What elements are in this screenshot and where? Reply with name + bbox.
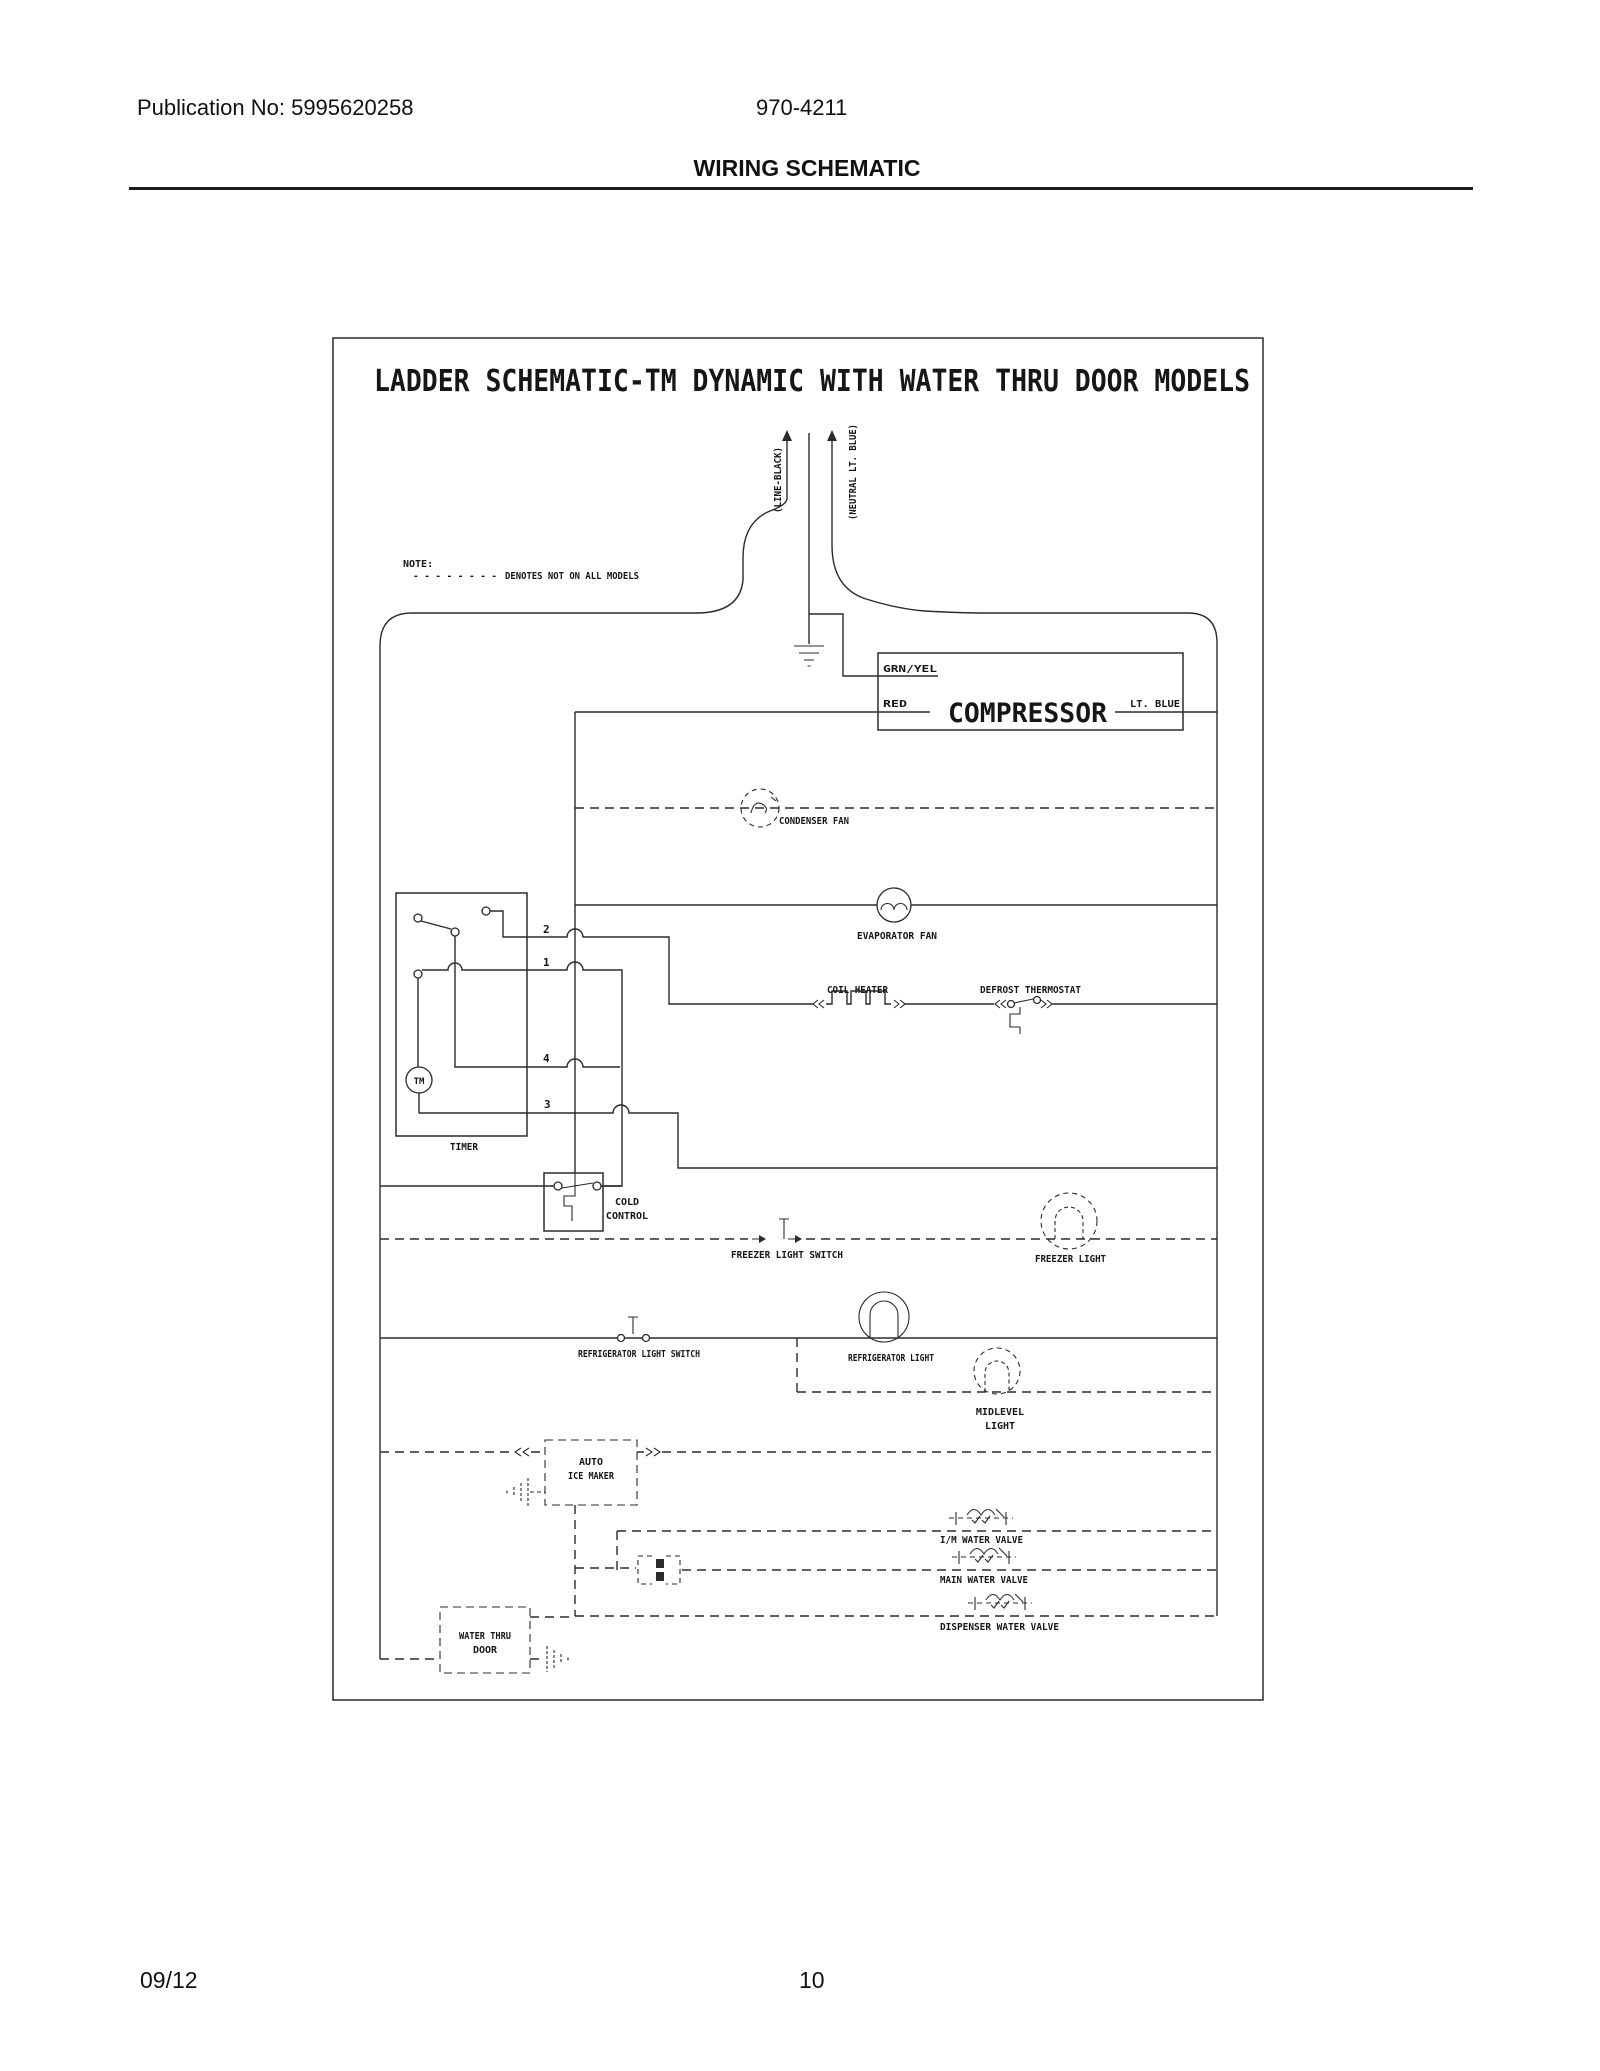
wire-label-grn-yel: GRN/YEL xyxy=(883,664,937,675)
timer-terminal3-wire xyxy=(419,1105,1217,1168)
connector-pin-gap xyxy=(656,1568,664,1572)
neutral-arrow-icon xyxy=(827,430,837,441)
cold-control-box xyxy=(544,1173,603,1231)
coil-heater-label: COIL HEATER xyxy=(827,985,889,996)
timer-terminal-2: 2 xyxy=(543,923,550,936)
defrost-contact-icon xyxy=(1034,997,1041,1004)
midlevel-light-label-1: MIDLEVEL xyxy=(976,1407,1024,1418)
timer-terminal-4: 4 xyxy=(543,1052,550,1065)
connector-chevron-icon xyxy=(813,1000,824,1008)
main-water-valve-icon xyxy=(952,1548,1016,1564)
midlevel-light-wire xyxy=(797,1338,1217,1392)
valve-feed-wires xyxy=(575,1505,636,1616)
im-water-valve-icon xyxy=(949,1509,1013,1525)
switch-contact-icon xyxy=(643,1335,650,1342)
neutral-label: (NEUTRAL LT. BLUE) xyxy=(848,424,859,520)
condenser-fan: CONDENSER FAN xyxy=(575,789,1217,827)
timer-terminal2-wire xyxy=(490,911,814,1004)
ice-maker-label-1: AUTO xyxy=(579,1457,603,1468)
freezer-door-switch-icon xyxy=(752,1219,796,1239)
water-valve-circuits: I/M WATER VALVE MAIN WATER VALVE DISPENS… xyxy=(575,1505,1217,1633)
defrost-thermostat-label: DEFROST THERMOSTAT xyxy=(980,985,1081,996)
timer-terminal4-wire xyxy=(455,936,620,1067)
cold-control-label-2: CONTROL xyxy=(606,1211,648,1222)
publication-number: Publication No: 5995620258 xyxy=(137,95,413,120)
cold-control-contact-icon xyxy=(593,1182,601,1190)
wire-label-lt-blue: LT. BLUE xyxy=(1130,699,1180,710)
condenser-fan-label: CONDENSER FAN xyxy=(779,816,849,827)
im-water-valve-label: I/M WATER VALVE xyxy=(940,1535,1023,1546)
freezer-light-label: FREEZER LIGHT xyxy=(1035,1254,1106,1265)
evaporator-fan-motor-icon xyxy=(877,888,911,922)
note-label: NOTE: xyxy=(403,559,433,570)
timer-terminal-3: 3 xyxy=(544,1098,551,1111)
auto-ice-maker: AUTO ICE MAKER xyxy=(380,1440,1217,1506)
freezer-light-circuit: FREEZER LIGHT SWITCH FREEZER LIGHT xyxy=(380,1193,1217,1265)
schematic-frame xyxy=(333,338,1263,1700)
refrigerator-light-icon xyxy=(859,1292,909,1342)
cold-control-bellows-icon xyxy=(564,1173,575,1221)
water-thru-door-label-1: WATER THRU xyxy=(459,1631,511,1642)
ground-icon xyxy=(794,646,824,666)
line-arrow-icon xyxy=(782,430,792,441)
timer-contact-icon xyxy=(414,914,422,922)
document-number: 970-4211 xyxy=(756,95,847,120)
connector-chevron-icon xyxy=(894,1000,905,1008)
timer-contact-icon xyxy=(451,928,459,936)
supply-lines: (LINE-BLACK) (NEUTRAL LT. BLUE) xyxy=(380,424,1217,1659)
footer-date: 09/12 xyxy=(140,1967,198,1993)
ground-icon xyxy=(547,1646,568,1672)
wiring-schematic-page: Publication No: 5995620258 970-4211 WIRI… xyxy=(0,0,1600,2071)
midlevel-light-icon xyxy=(974,1348,1020,1394)
cold-control-contact-icon xyxy=(554,1182,562,1190)
document-page: Publication No: 5995620258 970-4211 WIRI… xyxy=(0,0,1600,2071)
water-thru-door: WATER THRU DOOR xyxy=(380,1607,575,1673)
footer-page-number: 10 xyxy=(799,1967,825,1993)
condenser-fan-winding-icon xyxy=(751,797,776,813)
page-title: WIRING SCHEMATIC xyxy=(693,155,920,181)
timer-terminal-1: 1 xyxy=(543,956,550,969)
freezer-light-icon xyxy=(1041,1193,1097,1249)
timer-motor-label: TM xyxy=(414,1077,425,1087)
cold-control-label-1: COLD xyxy=(615,1197,639,1208)
timer-switch-arm xyxy=(421,921,451,929)
timer-contact-icon xyxy=(414,970,422,978)
switch-arrow-icon xyxy=(759,1235,802,1243)
freezer-light-switch-label: FREEZER LIGHT SWITCH xyxy=(731,1250,843,1261)
refrigerator-light-circuit: REFRIGERATOR LIGHT SWITCH REFRIGERATOR L… xyxy=(380,1292,1217,1364)
refrigerator-light-label: REFRIGERATOR LIGHT xyxy=(848,1353,934,1364)
ice-maker-label-2: ICE MAKER xyxy=(568,1471,615,1482)
schematic-title: LADDER SCHEMATIC-TM DYNAMIC WITH WATER T… xyxy=(374,364,1250,399)
timer-box xyxy=(396,893,527,1136)
refrigerator-light-switch-label: REFRIGERATOR LIGHT SWITCH xyxy=(578,1349,700,1360)
midlevel-light-label-2: LIGHT xyxy=(985,1421,1015,1432)
defrost-circuit: COIL HEATER DEFROST THERMOSTAT xyxy=(490,911,1217,1034)
line-label: (LINE-BLACK) xyxy=(773,447,784,513)
main-water-valve-label: MAIN WATER VALVE xyxy=(940,1575,1028,1586)
refrigerator-door-switch-icon xyxy=(628,1317,638,1334)
water-thru-door-label-2: DOOR xyxy=(473,1645,498,1656)
note-text: DENOTES NOT ON ALL MODELS xyxy=(505,571,639,582)
dispenser-water-valve-label: DISPENSER WATER VALVE xyxy=(940,1622,1059,1633)
header-rule xyxy=(129,187,1473,190)
ground-icon xyxy=(507,1478,528,1506)
compressor-label: COMPRESSOR xyxy=(948,698,1108,729)
midlevel-lamp-filament-icon xyxy=(985,1361,1009,1392)
neutral-conductor xyxy=(832,437,1217,1616)
cold-control-arm xyxy=(562,1183,593,1188)
wire-label-red: RED xyxy=(883,699,907,710)
compressor: GRN/YEL RED COMPRESSOR LT. BLUE xyxy=(575,614,1217,730)
switch-contact-icon xyxy=(618,1335,625,1342)
dispenser-water-valve-icon xyxy=(968,1594,1032,1610)
refrigerator-lamp-filament-icon xyxy=(870,1301,898,1338)
note-dash-sample: - - - - - - - - xyxy=(413,571,497,582)
evaporator-fan: EVAPORATOR FAN xyxy=(575,888,1217,942)
page-header: Publication No: 5995620258 970-4211 WIRI… xyxy=(129,95,1473,190)
freezer-lamp-filament-icon xyxy=(1055,1207,1083,1239)
page-footer: 09/12 10 xyxy=(140,1967,825,1993)
evaporator-fan-label: EVAPORATOR FAN xyxy=(857,931,937,942)
note-legend: NOTE: - - - - - - - - DENOTES NOT ON ALL… xyxy=(403,559,639,582)
defrost-contact-icon xyxy=(1008,1001,1015,1008)
timer-label: TIMER xyxy=(450,1142,479,1153)
timer-contact-icon xyxy=(482,907,490,915)
